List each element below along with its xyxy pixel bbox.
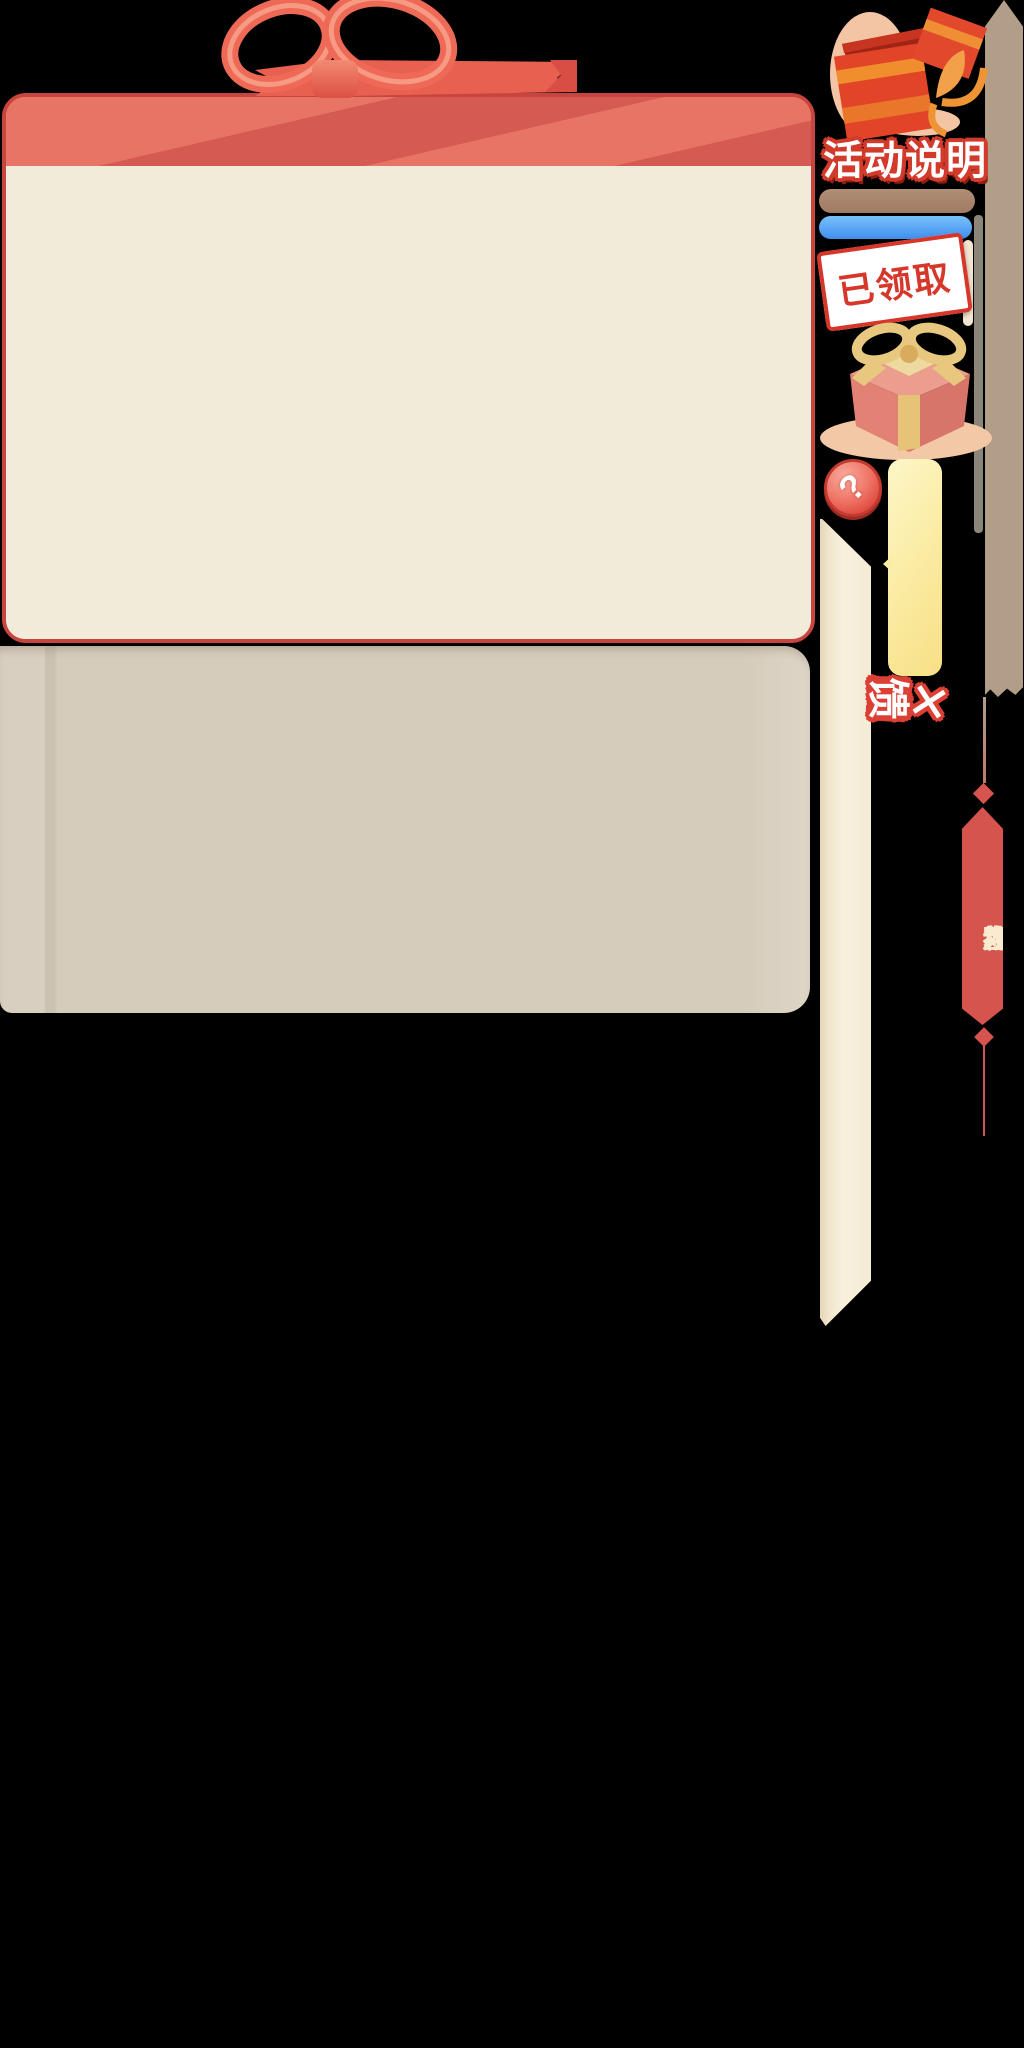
- ribbon-bow-icon: [205, 0, 577, 108]
- screen: 活动说明 已领取 ? ✕ 庆国庆 互动大回馈 互动大礼包: [0, 0, 1024, 2048]
- panel-body: [6, 166, 811, 639]
- claimed-stamp: 已领取: [816, 232, 973, 332]
- banner-string: [983, 697, 986, 783]
- help-button[interactable]: ?: [824, 459, 882, 517]
- open-gift-icon: [818, 0, 990, 140]
- side-banner-tab[interactable]: 互动大礼包: [962, 807, 1003, 1025]
- secondary-panel: [0, 646, 810, 1013]
- event-title-vertical: 庆国庆 互动大回馈: [866, 678, 916, 1023]
- section-title: 活动说明: [813, 137, 997, 187]
- progress-bar-brown: [819, 189, 975, 213]
- note-tab-pointer: [874, 555, 893, 573]
- main-gift-panel: [2, 93, 815, 643]
- banner-diamond-bottom: [974, 1027, 994, 1047]
- banner-tail-line: [983, 1046, 985, 1136]
- note-tab[interactable]: [888, 459, 942, 676]
- question-mark-icon: ?: [831, 466, 874, 509]
- streamer-ribbon: [820, 519, 871, 1326]
- banner-diamond-top: [973, 783, 994, 804]
- gift-box-button[interactable]: [812, 320, 1004, 462]
- claimed-stamp-label: 已领取: [816, 232, 973, 332]
